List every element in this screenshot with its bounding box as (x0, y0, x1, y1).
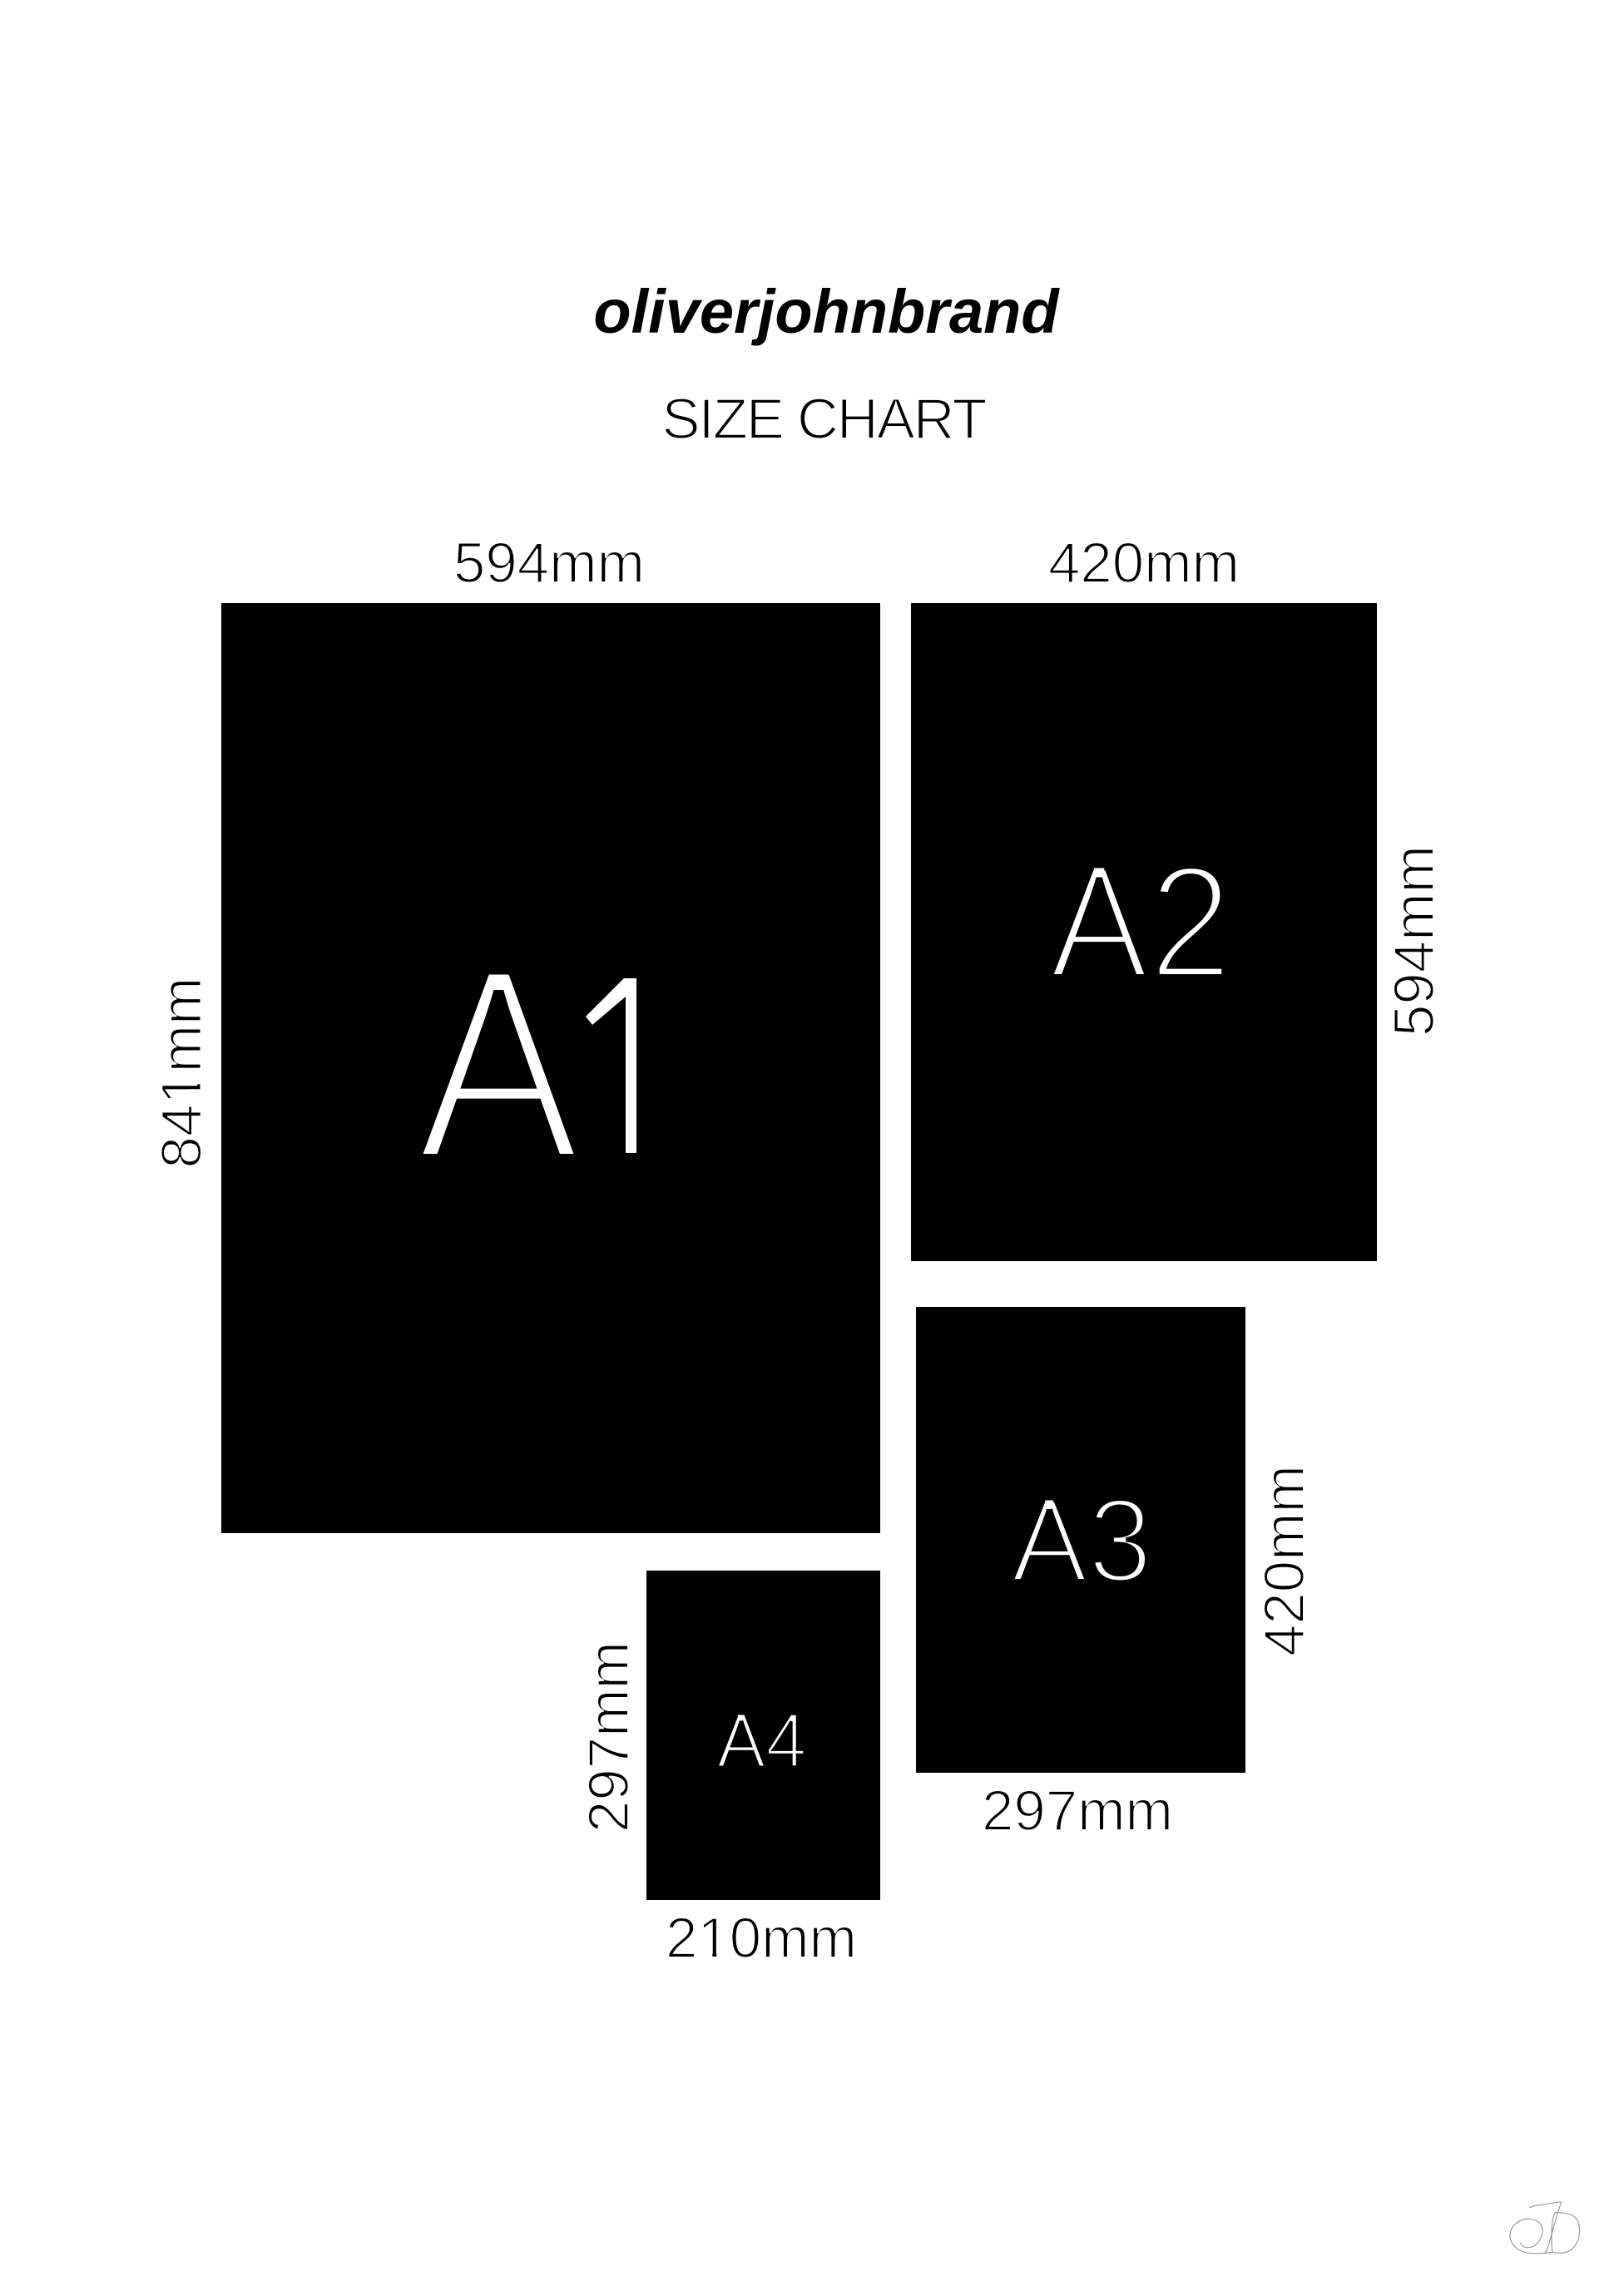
svg-text:420mm: 420mm (1252, 1465, 1316, 1656)
svg-text:A2: A2 (1049, 832, 1232, 1012)
svg-text:oliverjohnbrand: oliverjohnbrand (593, 277, 1060, 346)
svg-text:420mm: 420mm (1048, 531, 1240, 595)
svg-text:297mm: 297mm (982, 1779, 1173, 1843)
svg-text:A: A (416, 910, 582, 1217)
svg-text:A3: A3 (1011, 1475, 1152, 1607)
svg-text:594mm: 594mm (1382, 845, 1446, 1037)
svg-text:297mm: 297mm (577, 1641, 641, 1833)
svg-text:A4: A4 (717, 1697, 807, 1784)
svg-text:210mm: 210mm (666, 1906, 857, 1970)
svg-text:SIZE CHART: SIZE CHART (662, 387, 987, 451)
svg-text:841mm: 841mm (150, 977, 214, 1168)
svg-text:594mm: 594mm (453, 531, 645, 595)
